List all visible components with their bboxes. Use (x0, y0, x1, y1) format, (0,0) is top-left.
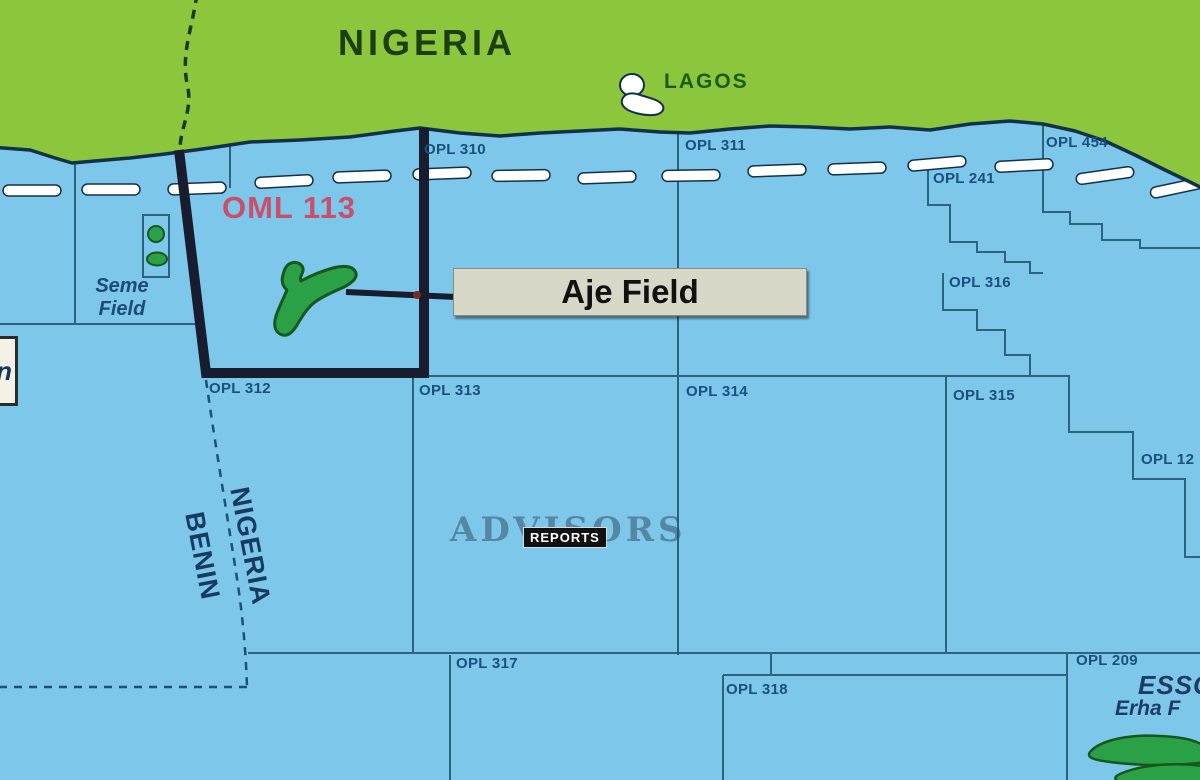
block-label-opl-314: OPL 314 (686, 383, 748, 400)
block-label-opl-311: OPL 311 (685, 137, 746, 154)
block-label-opl-316: OPL 316 (949, 274, 1011, 291)
city-label-lagos: LAGOS (664, 70, 749, 94)
seme-field-label: Seme Field (80, 275, 164, 321)
aje-field-callout: Aje Field (453, 268, 807, 316)
seme-field-label-line2: Field (80, 298, 164, 321)
block-label-opl-318: OPL 318 (726, 681, 788, 698)
erha-field-label: Erha F (1115, 697, 1180, 721)
block-boundary-lines (0, 124, 1200, 780)
block-label-opl-209: OPL 209 (1076, 652, 1138, 669)
clipped-edge-label-box: n (0, 336, 18, 406)
oml-113-label: OML 113 (222, 190, 356, 226)
block-label-opl-312: OPL 312 (209, 380, 271, 397)
aje-field-callout-text: Aje Field (561, 273, 699, 311)
block-label-opl-241: OPL 241 (933, 170, 995, 187)
block-label-opl-12: OPL 12 (1141, 451, 1194, 468)
country-label-nigeria: NIGERIA (338, 22, 516, 64)
seme-field-shapes (147, 226, 167, 266)
block-label-opl-313: OPL 313 (419, 382, 481, 399)
erha-field-shapes (1089, 736, 1200, 780)
oml-113-outline (179, 128, 424, 373)
block-label-opl-454: OPL 454 (1046, 134, 1108, 151)
block-label-opl-310: OPL 310 (424, 141, 486, 158)
map-graphics (0, 0, 1200, 780)
seme-field-box (143, 215, 169, 277)
block-label-opl-315: OPL 315 (953, 387, 1015, 404)
watermark-reports-badge: REPORTS (523, 527, 607, 548)
aje-field-shape (275, 262, 356, 335)
aje-pointer-line (346, 292, 456, 297)
clipped-edge-label-text: n (0, 356, 12, 387)
seme-field-label-line1: Seme (80, 275, 164, 298)
aje-well-dot (413, 291, 421, 299)
oml113-aje-field-map: NIGERIA LAGOS OML 113 Aje Field Seme Fie… (0, 0, 1200, 780)
block-label-opl-317: OPL 317 (456, 655, 518, 672)
